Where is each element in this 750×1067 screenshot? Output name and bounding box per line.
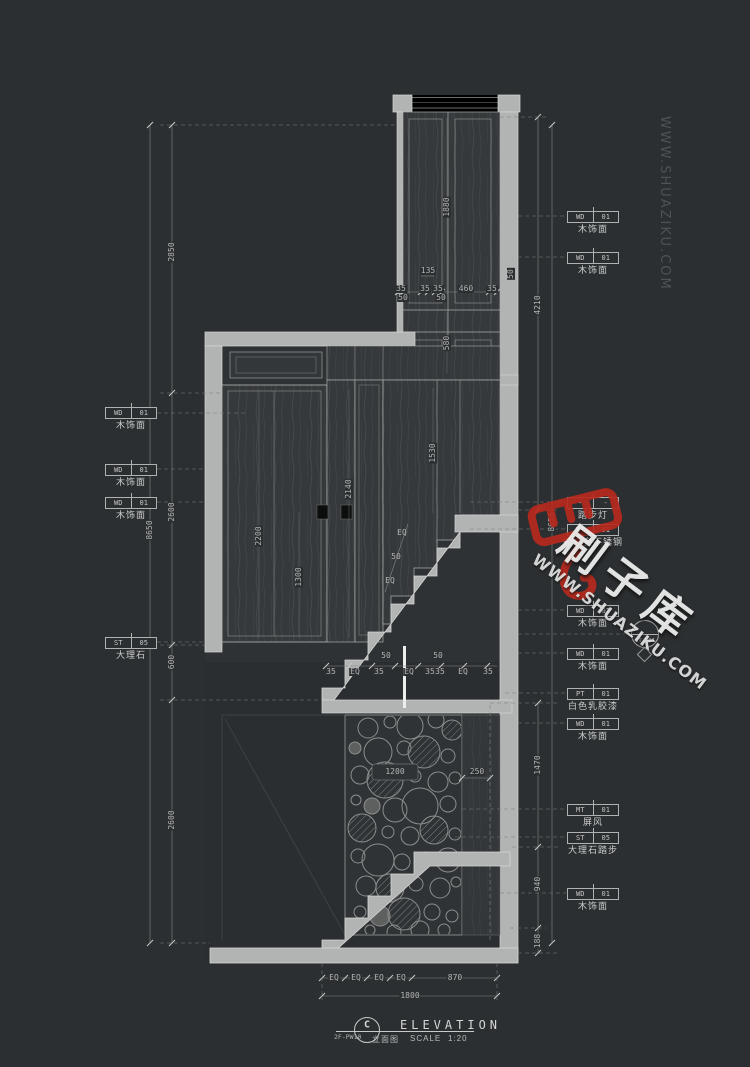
dim-8650-left: 8650 (146, 519, 154, 540)
material-tag-pt01: PT01 白色乳胶漆 (558, 688, 628, 711)
light-tag-code: LT-P01 (632, 635, 658, 648)
lower-right-panel (462, 705, 500, 940)
material-tag-box: WD01 (567, 718, 619, 730)
light-tag-top (632, 621, 658, 635)
material-num: 05 (594, 833, 619, 843)
dim-135: 135 (420, 267, 436, 275)
dim-188: 188 (534, 933, 542, 949)
ceiling-beam (393, 95, 520, 112)
material-desc: 木饰面 (578, 266, 608, 275)
material-tag-wd01: WD01 木饰面 (96, 464, 166, 487)
material-desc: 木饰面 (116, 421, 146, 430)
material-code: WD (568, 889, 594, 899)
material-code: WD (106, 498, 132, 508)
dim-2200: 2200 (255, 525, 263, 546)
material-tag-step-light: -- 踏步灯 (558, 497, 628, 520)
handrail-post (403, 646, 406, 708)
material-num: 01 (132, 465, 157, 475)
crown-valance (230, 352, 322, 378)
dim-eq: EQ (350, 974, 362, 982)
wardrobe-panel (222, 385, 327, 642)
dim-50-stair: 50 (390, 553, 402, 561)
door-handle (341, 505, 352, 519)
material-num: - (594, 498, 619, 508)
dim-35: 35 (486, 285, 498, 293)
dim-1470: 1470 (534, 754, 542, 775)
material-tag-wd01: WD01 木饰面 (96, 407, 166, 430)
dim-1880: 1880 (443, 196, 451, 217)
scale-label: SCALE (410, 1034, 441, 1043)
material-desc: 木饰面 (578, 225, 608, 234)
material-code: MT (568, 805, 594, 815)
material-tag-box: -- (567, 497, 619, 509)
material-tag-box: MT01 (567, 804, 619, 816)
material-code: MT (568, 525, 594, 535)
dim-eq: EQ (457, 668, 469, 676)
dim-eq: EQ (328, 974, 340, 982)
material-num: 01 (594, 689, 619, 699)
material-code: WD (106, 465, 132, 475)
material-code: WD (568, 606, 594, 616)
material-code: WD (106, 408, 132, 418)
material-num: 01 (132, 498, 157, 508)
material-tag-wd01: WD01 木饰面 (558, 211, 628, 234)
drawing-title-cn: 立面图 (372, 1034, 399, 1045)
material-num: 01 (594, 212, 619, 222)
material-tag-wd01: WD01 木饰面 (558, 718, 628, 741)
elevation-drawing (0, 0, 750, 1067)
material-code: ST (568, 833, 594, 843)
light-fixture-tag: LT-P01 (631, 620, 659, 648)
material-tag-box: WD01 (105, 407, 157, 419)
dim-250: 250 (469, 768, 485, 776)
material-tag-wd01: WD01 木饰面 (558, 888, 628, 911)
dim-870: 870 (447, 974, 463, 982)
dim-1300: 1300 (295, 566, 303, 587)
material-num: 01 (594, 649, 619, 659)
material-tag-mt01-screen: MT01 屏风 (558, 804, 628, 827)
material-tag-box: ST05 (105, 637, 157, 649)
material-tag-wd01: WD01 木饰面 (558, 252, 628, 275)
material-tag-box: PT01 (567, 688, 619, 700)
material-code: PT (568, 689, 594, 699)
detail-letter: C (364, 1020, 370, 1031)
material-num: 01 (132, 408, 157, 418)
material-desc: 屏风 (583, 818, 603, 827)
dim-2850: 2850 (168, 241, 176, 262)
material-tag-box: WD01 (567, 605, 619, 617)
material-tag-st05: ST05 大理石 (96, 637, 166, 660)
dim-eq-stair: EQ (396, 529, 408, 537)
material-code: ST (106, 638, 132, 648)
material-desc: 香槟金不锈钢 (563, 538, 623, 547)
dim-1530: 1530 (429, 442, 437, 463)
material-num: 01 (594, 525, 619, 535)
material-desc: 大理石 (116, 651, 146, 660)
material-tag-wd01: WD01 木饰面 (558, 648, 628, 671)
dim-eq: EQ (349, 668, 361, 676)
door-handle (317, 505, 328, 519)
dim-940: 940 (534, 876, 542, 892)
material-desc: 木饰面 (578, 732, 608, 741)
material-num: 01 (594, 889, 619, 899)
material-code: WD (568, 649, 594, 659)
material-code: WD (568, 253, 594, 263)
dim-4210: 4210 (534, 294, 542, 315)
material-num: 01 (594, 253, 619, 263)
scale-value: 1:20 (448, 1034, 468, 1043)
material-tag-box: ST05 (567, 832, 619, 844)
material-tag-wd01: WD01 木饰面 (558, 605, 628, 628)
dim-1200: 1200 (384, 768, 405, 776)
dim-35: 35 (325, 668, 337, 676)
material-num: 01 (594, 805, 619, 815)
dim-eq: EQ (403, 668, 415, 676)
material-desc: 木饰面 (116, 511, 146, 520)
dim-580: 580 (443, 335, 451, 351)
material-num: 01 (594, 719, 619, 729)
dim-35: 35 (419, 285, 431, 293)
dim-600: 600 (168, 654, 176, 670)
material-code: WD (568, 719, 594, 729)
dim-50: 50 (380, 652, 392, 660)
dim-2600-upper: 2600 (168, 501, 176, 522)
dim-35: 35 (373, 668, 385, 676)
transom-panels (327, 346, 500, 380)
dim-50: 50 (397, 294, 409, 302)
dim-2140: 2140 (345, 478, 353, 499)
material-desc: 大理石踏步 (568, 846, 618, 855)
material-tag-box: WD01 (567, 648, 619, 660)
material-tag-box: WD01 (567, 252, 619, 264)
material-num: 01 (594, 606, 619, 616)
material-code: - (568, 498, 594, 508)
detail-code: 2F-PW10 (334, 1033, 361, 1041)
material-tag-box: MT01 (567, 524, 619, 536)
material-tag-box: WD01 (105, 497, 157, 509)
dim-50: 50 (507, 268, 515, 280)
tall-doors (317, 380, 383, 642)
bubble-feature-wall (345, 712, 462, 939)
material-tag-box: WD01 (567, 211, 619, 223)
material-desc: 木饰面 (116, 478, 146, 487)
mid-floor-slab (322, 700, 512, 713)
material-tag-box: WD01 (567, 888, 619, 900)
dim-8650-right: 8650 (548, 511, 556, 532)
material-desc: 木饰面 (578, 619, 608, 628)
upper-landing-slab (455, 515, 518, 532)
material-desc: 踏步灯 (578, 511, 608, 520)
drawing-title-en: ELEVATION (400, 1018, 501, 1032)
dim-eq: EQ (395, 974, 407, 982)
dim-35: 35 (482, 668, 494, 676)
dim-eq-stair: EQ (384, 577, 396, 585)
material-desc: 木饰面 (578, 662, 608, 671)
material-desc: 木饰面 (578, 902, 608, 911)
material-tag-st05-steps: ST05 大理石踏步 (558, 832, 628, 855)
material-tag-box: WD01 (105, 464, 157, 476)
dim-35: 35 (434, 668, 446, 676)
dim-50: 50 (435, 294, 447, 302)
elevation-sheet: 2850 2600 600 2600 8650 4210 8650 1470 9… (0, 0, 750, 1067)
dim-50: 50 (432, 652, 444, 660)
material-num: 05 (132, 638, 157, 648)
dim-eq: EQ (373, 974, 385, 982)
material-tag-mt01: MT01 香槟金不锈钢 (558, 524, 628, 547)
dim-35: 35 (395, 285, 407, 293)
material-tag-wd01: WD01 木饰面 (96, 497, 166, 520)
material-code: WD (568, 212, 594, 222)
dim-1800: 1800 (399, 992, 420, 1000)
dim-35: 35 (432, 285, 444, 293)
material-desc: 白色乳胶漆 (568, 702, 618, 711)
dim-460: 460 (458, 285, 474, 293)
bottom-floor-slab (210, 948, 518, 963)
dim-2600-lower: 2600 (168, 809, 176, 830)
